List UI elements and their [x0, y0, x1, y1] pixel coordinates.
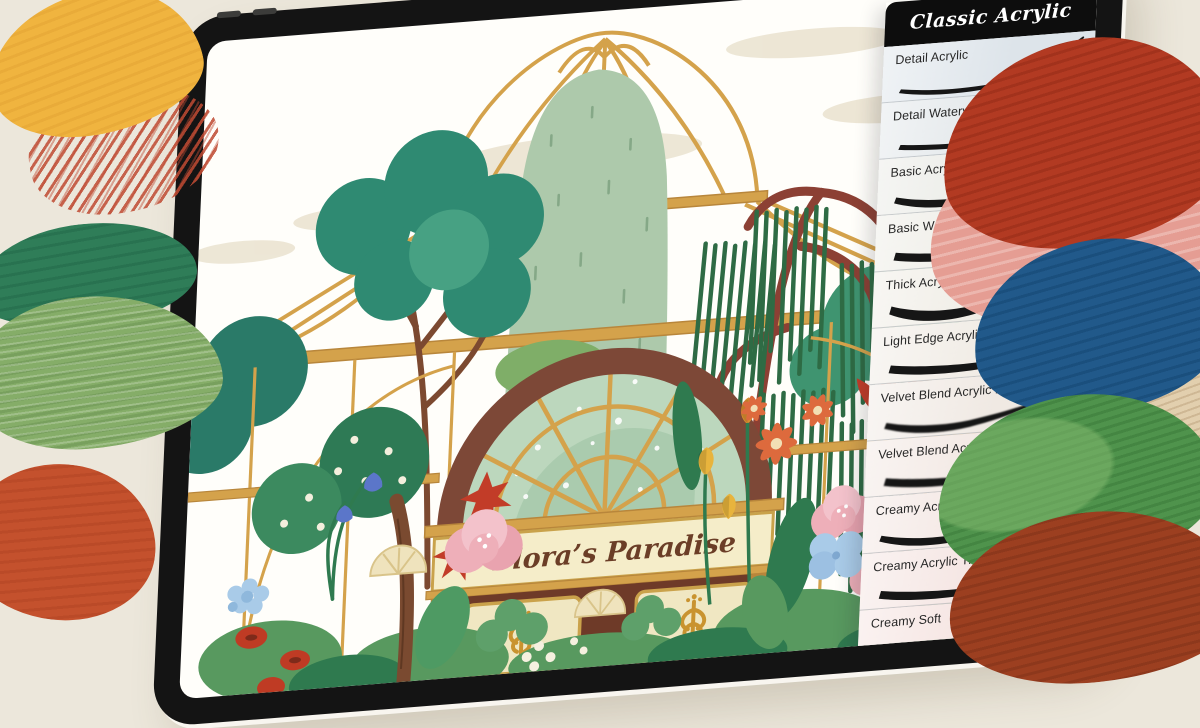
brush-panel-title: Classic Acrylic [909, 0, 1072, 34]
paint-swatch-vermilion [0, 453, 165, 631]
volume-button [217, 10, 241, 18]
scene: Flora’s Paradise [0, 0, 1200, 675]
volume-button [253, 8, 277, 16]
brush-label: Detail Acrylic [895, 47, 968, 67]
